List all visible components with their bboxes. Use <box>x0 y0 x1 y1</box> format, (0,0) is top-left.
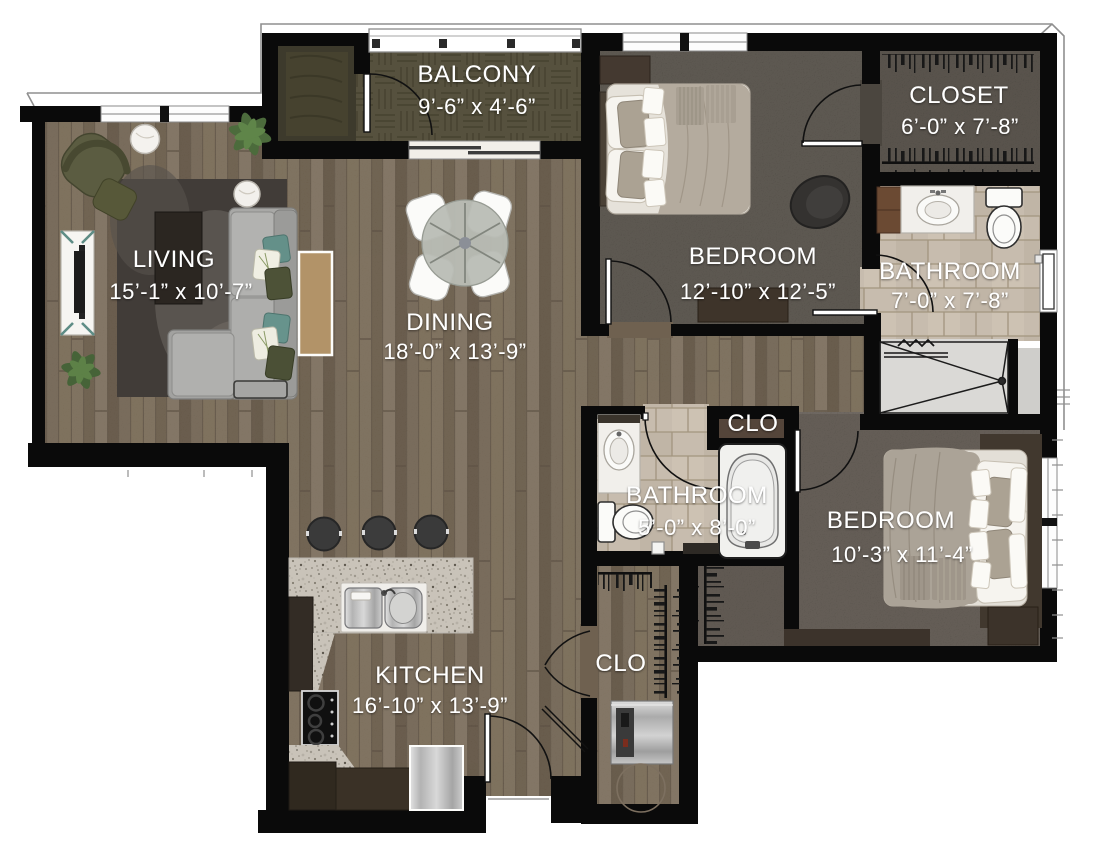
svg-text:LIVING: LIVING <box>133 246 215 273</box>
svg-text:KITCHEN: KITCHEN <box>375 662 485 689</box>
svg-text:16’-10” x 13’-9”: 16’-10” x 13’-9” <box>352 693 508 718</box>
svg-text:18’-0” x 13’-9”: 18’-0” x 13’-9” <box>383 339 526 364</box>
svg-text:BALCONY: BALCONY <box>418 61 537 88</box>
svg-text:10’-3” x 11’-4”: 10’-3” x 11’-4” <box>831 542 973 567</box>
svg-text:6’-0” x 7’-8”: 6’-0” x 7’-8” <box>901 114 1019 139</box>
svg-text:15’-1” x 10’-7”: 15’-1” x 10’-7” <box>109 279 252 304</box>
svg-text:DINING: DINING <box>406 309 494 336</box>
svg-text:9’-6” x 4’-6”: 9’-6” x 4’-6” <box>418 94 536 119</box>
svg-text:CLOSET: CLOSET <box>909 82 1009 109</box>
svg-text:BATHROOM: BATHROOM <box>879 258 1021 285</box>
svg-text:BEDROOM: BEDROOM <box>689 243 817 270</box>
svg-text:BEDROOM: BEDROOM <box>827 507 955 534</box>
svg-text:7’-0” x 7’-8”: 7’-0” x 7’-8” <box>891 288 1009 313</box>
svg-text:BATHROOM: BATHROOM <box>626 482 768 509</box>
svg-text:12’-10” x 12’-5”: 12’-10” x 12’-5” <box>680 279 836 304</box>
svg-text:CLO: CLO <box>727 410 778 437</box>
svg-text:5’-0” x 8’-0”: 5’-0” x 8’-0” <box>638 515 756 540</box>
svg-text:CLO: CLO <box>595 650 646 677</box>
